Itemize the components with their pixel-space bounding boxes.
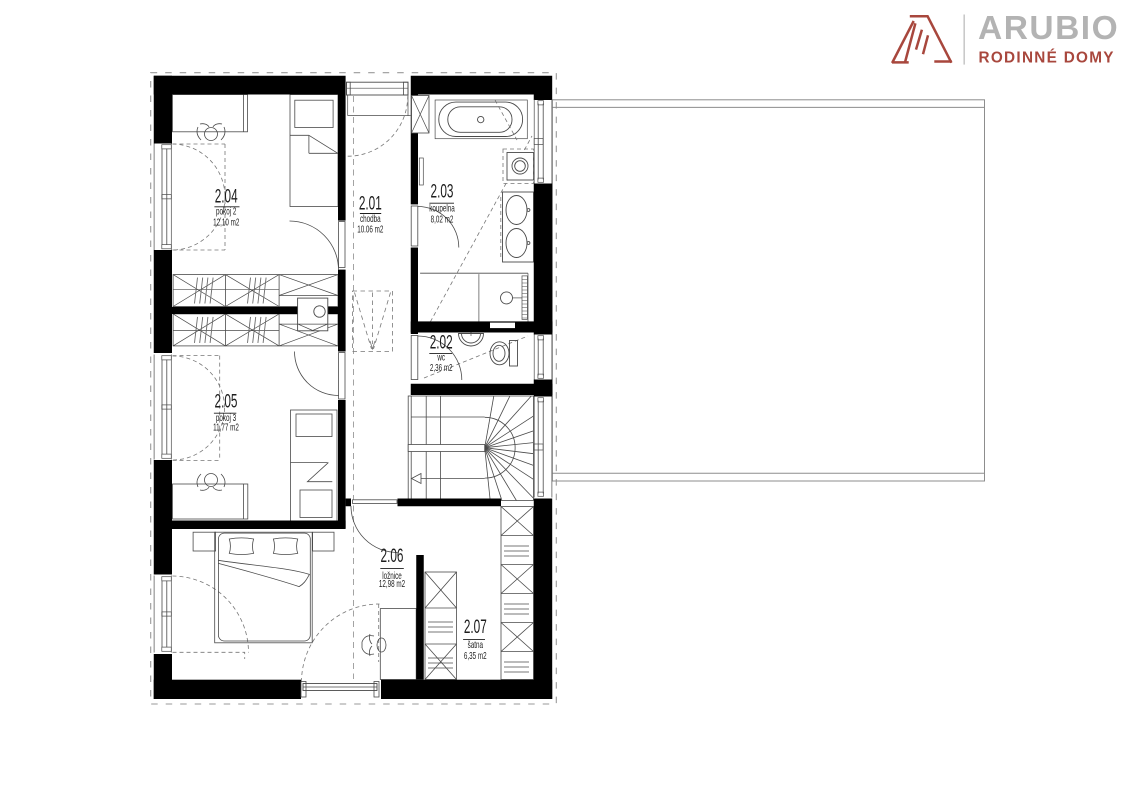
svg-text:8,02 m2: 8,02 m2 — [431, 213, 454, 225]
svg-text:2.05: 2.05 — [215, 392, 238, 412]
svg-text:10.06 m2: 10.06 m2 — [357, 223, 383, 235]
svg-text:6,35 m2: 6,35 m2 — [464, 649, 487, 661]
svg-text:11,77 m2: 11,77 m2 — [213, 421, 239, 433]
svg-text:2.03: 2.03 — [431, 182, 454, 202]
svg-text:ARUBIO: ARUBIO — [978, 10, 1119, 47]
svg-text:2,36 m2: 2,36 m2 — [430, 361, 453, 373]
svg-text:RODINNÉ DOMY: RODINNÉ DOMY — [979, 50, 1115, 67]
svg-text:12,10 m2: 12,10 m2 — [213, 216, 239, 228]
svg-text:12,98 m2: 12,98 m2 — [379, 577, 405, 589]
svg-text:2.06: 2.06 — [381, 546, 404, 566]
svg-text:2.07: 2.07 — [464, 617, 487, 637]
